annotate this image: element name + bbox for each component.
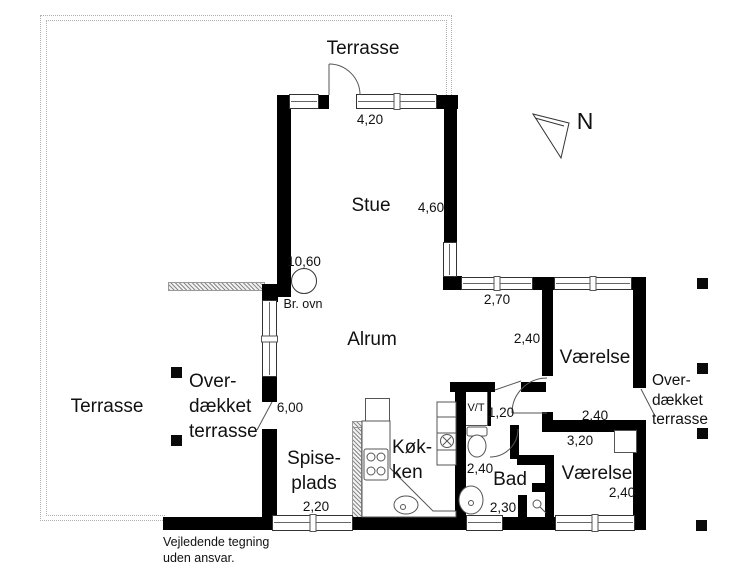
terrace-post-left-2 — [171, 435, 182, 446]
label-alrum: Alrum — [347, 329, 397, 352]
label-kokken-line2: ken — [392, 460, 432, 485]
disclaimer-line1: Vejledende tegning — [163, 535, 269, 551]
covered-right-line2: dækket — [652, 391, 708, 411]
vaerelse-se-west-wall — [545, 455, 554, 518]
bottom-wall-west — [163, 517, 273, 530]
dim-hall: 3,20 — [567, 433, 593, 449]
stue-east-window — [443, 242, 457, 277]
east-wall-upper — [633, 288, 646, 388]
stue-north-window-1 — [289, 94, 319, 109]
tall-cabinet — [365, 398, 390, 422]
dim-bad-width: 2,40 — [467, 461, 493, 477]
dim-alrum-window: 2,70 — [484, 292, 510, 308]
label-vt: V/T — [467, 402, 484, 415]
covered-left-line1: Over- — [189, 369, 258, 394]
disclaimer-line2: uden ansvar. — [163, 551, 269, 566]
dim-spiseplads-width: 2,20 — [303, 499, 329, 515]
kitchen-sink — [394, 496, 418, 514]
dim-stue-depth: 4,60 — [418, 200, 444, 216]
label-vaerelse-ne: Værelse — [560, 347, 631, 370]
label-terrasse-left: Terrasse — [71, 396, 144, 419]
terrace-post-right-1 — [697, 278, 708, 289]
north-arrow-outline — [533, 114, 569, 158]
terrace-boundary-left — [40, 15, 41, 521]
terrace-boundary-top — [40, 15, 452, 16]
label-covered-terrace-right: Over- dækket terrasse — [652, 371, 708, 430]
label-br-ovn: Br. ovn — [284, 297, 323, 312]
label-kokken: Køk- ken — [392, 435, 432, 485]
entry-door-arc — [329, 64, 360, 95]
vaerelse-se-south-window — [555, 515, 635, 531]
dim-vaerelse-se-width: 2,40 — [609, 485, 635, 501]
wood-stove-circle — [291, 268, 317, 294]
boiler-circle — [441, 435, 454, 448]
label-vaerelse-se: Værelse — [562, 463, 633, 486]
label-covered-terrace-left: Over- dækket terrasse — [189, 369, 258, 444]
terrace-boundary-right-inner — [446, 20, 447, 97]
label-spiseplads-line1: Spise- — [287, 446, 341, 471]
spiseplads-south-window — [272, 515, 353, 531]
burner-2 — [377, 453, 385, 461]
shower-stub-v — [518, 495, 527, 518]
basin-drain — [469, 501, 474, 506]
west-terrace-door-leaf — [257, 402, 272, 430]
label-spiseplads: Spise- plads — [287, 446, 341, 496]
terrace-boundary-left-inner — [46, 20, 47, 516]
toilet-bowl — [468, 435, 486, 457]
appliance-column — [437, 402, 456, 465]
toilet-tank — [467, 427, 487, 436]
stove — [364, 449, 388, 480]
terrace-boundary-bottom-inner — [46, 515, 165, 516]
hall-door-leaf — [495, 381, 521, 390]
north-arrow-inner-line — [535, 118, 564, 126]
dim-entry: 1,20 — [488, 405, 514, 421]
dim-stue-width: 4,20 — [357, 112, 383, 128]
shower-head — [533, 500, 541, 508]
bad-south-window — [466, 515, 503, 531]
terrace-post-right-3 — [697, 428, 708, 439]
label-terrasse-top: Terrasse — [327, 38, 400, 61]
west-wall-lower — [262, 429, 277, 528]
label-bad: Bad — [493, 469, 527, 492]
west-wall-pier — [262, 376, 277, 402]
disclaimer-text: Vejledende tegning uden ansvar. — [163, 535, 269, 566]
alrum-south-wall-east — [521, 382, 546, 392]
wardrobe — [614, 430, 637, 453]
north-arrow — [533, 114, 569, 158]
burner-1 — [367, 453, 375, 461]
dim-bad-depth: 2,30 — [490, 500, 516, 516]
alrum-west-window — [262, 300, 277, 377]
terrace-boundary-right — [451, 15, 452, 97]
covered-right-line1: Over- — [652, 371, 708, 391]
label-stue: Stue — [351, 195, 390, 218]
boiler-mark-1 — [443, 437, 451, 445]
vaerelse-ne-north-window — [554, 277, 632, 290]
dim-west-door: 6,00 — [277, 400, 303, 416]
dim-alrum-width: 10,60 — [287, 254, 321, 270]
label-spiseplads-line2: plads — [287, 471, 341, 496]
terrace-post-left-1 — [171, 367, 182, 378]
bottom-wall-east — [502, 517, 556, 530]
vaerelse-ne-west-wall — [542, 288, 553, 376]
covered-left-line3: terrasse — [189, 419, 258, 444]
kitchen-partition-vertical — [352, 421, 362, 518]
stue-east-corner — [443, 276, 462, 290]
kitchen-partition-top — [352, 421, 382, 428]
terrace-post-right-4 — [696, 520, 707, 531]
alrum-north-window — [461, 277, 533, 290]
label-kokken-line1: Køk- — [392, 435, 432, 460]
floor-plan-canvas: Terrasse Stue Alrum Værelse Værelse Bad … — [0, 0, 755, 566]
label-north: N — [577, 108, 594, 136]
stue-east-wall — [444, 95, 457, 243]
bad-west-wall — [455, 382, 466, 518]
pergola-edge-hatch — [168, 282, 265, 291]
bad-east-wall-segment — [517, 455, 548, 465]
top-wall-pier — [318, 95, 329, 109]
terrace-boundary-top-inner — [46, 20, 447, 21]
dim-alrum-east: 2,40 — [514, 331, 540, 347]
burner-4 — [377, 467, 385, 475]
stue-north-window-2 — [356, 94, 437, 109]
bottom-wall-center — [352, 517, 467, 530]
hall-stub-wall — [510, 425, 519, 459]
terrace-boundary-bottom — [40, 520, 165, 521]
shower-stub-h — [532, 483, 546, 492]
covered-left-line2: dækket — [189, 394, 258, 419]
dim-vaerelse-ne-width: 2,40 — [582, 408, 608, 424]
sink-drain — [401, 505, 406, 510]
burner-3 — [367, 467, 375, 475]
covered-right-line3: terrasse — [652, 410, 708, 430]
boiler-mark-2 — [443, 437, 451, 445]
